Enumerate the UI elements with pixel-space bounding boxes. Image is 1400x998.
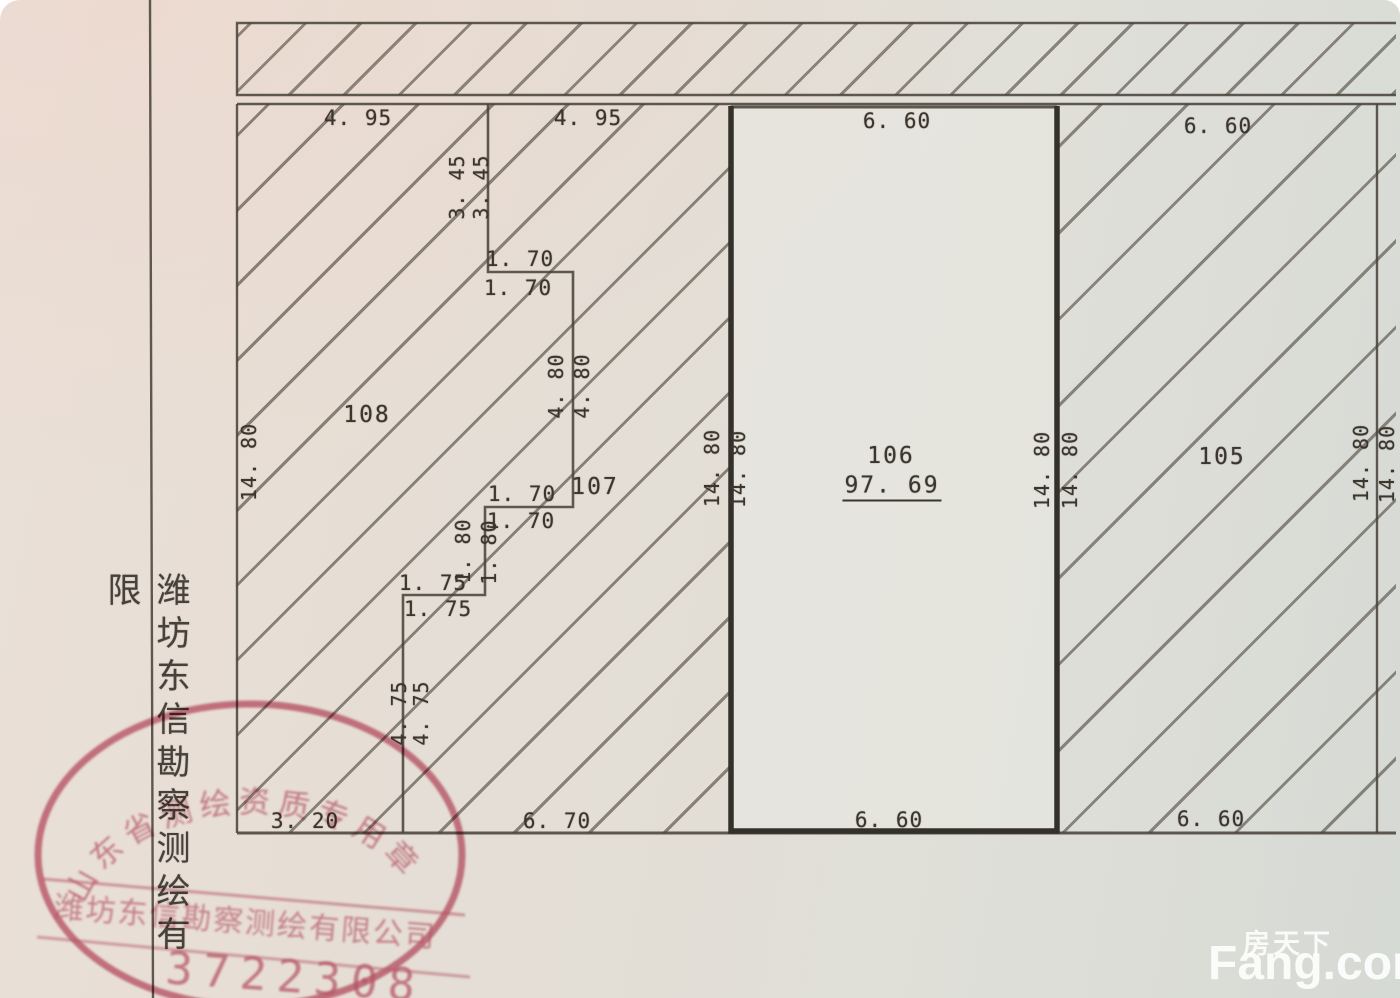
parcel-108-label: 108 [343,402,391,428]
dim-step-170-upper: 1. 70 [486,247,554,271]
dim-105-left-height: 14. 80 [1058,431,1082,509]
survey-plan-scan: 4. 95 4. 95 6. 60 6. 60 1. 70 1. 70 1. 7… [0,0,1400,998]
parcel-107-label: 107 [571,474,619,500]
dim-345-left: 3. 45 [445,154,469,219]
dim-step-175-lower: 1. 75 [404,597,472,621]
dim-106-left-height: 14. 80 [726,430,750,508]
company-stamp: 山东省测绘资质专用章 潍坊东信勘察测绘有限公司 3722308 [15,693,535,998]
dim-180-right: 1. 80 [477,519,501,584]
dim-345-right: 3. 45 [469,154,493,219]
dim-106-bottom-width: 6. 60 [855,808,923,832]
dim-105-right-height: 14. 80 [1349,424,1373,502]
dim-107-top-width: 4. 95 [554,106,622,130]
svg-text:山东省测绘资质专用章: 山东省测绘资质专用章 [59,784,430,908]
stamp-company-line: 潍坊东信勘察测绘有限公司 [52,890,438,955]
dim-right-edge-height: 14. 80 [1375,425,1399,503]
dim-180-left: 1. 80 [451,518,475,583]
dim-108-top-width: 4. 95 [324,106,392,130]
dim-step2-170-upper: 1. 70 [488,482,556,506]
dim-105-bottom-width: 6. 60 [1177,807,1245,831]
dim-107-right-height: 14. 80 [700,429,724,507]
dim-480-left: 4. 80 [544,353,568,418]
watermark-fang-logo: Fang.com [1208,936,1400,991]
parcel-105-label: 105 [1198,444,1246,470]
stamp-arc-text: 山东省测绘资质专用章 [59,784,430,908]
band-outline [237,23,1396,95]
parcel-106-area-value: 97. 69 [842,473,941,502]
dim-105-top-width: 6. 60 [1184,114,1252,138]
dim-step-170-lower: 1. 70 [484,276,552,300]
parcel-106-label: 106 [867,443,915,469]
dim-108-left-height: 14. 80 [237,423,261,501]
dim-480-right: 4. 80 [570,353,594,418]
dim-106-right-height: 14. 80 [1030,431,1054,509]
dim-106-top-width: 6. 60 [863,109,931,133]
